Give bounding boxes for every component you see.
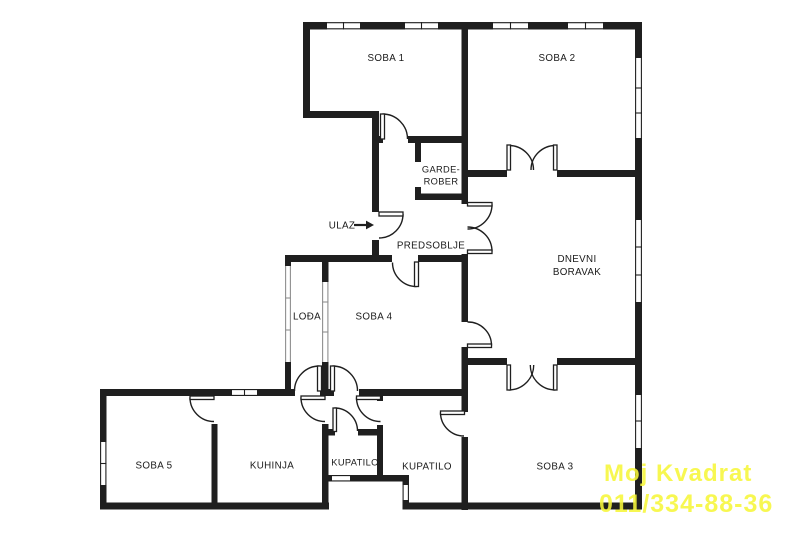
glazing-loggia-divider [322, 282, 329, 362]
wall-vestibule-bottom-right [358, 429, 383, 436]
wall-lower-top-4 [359, 389, 468, 396]
wall-right-1 [635, 22, 642, 58]
wall-right-3 [635, 302, 642, 395]
window-soba1-b [405, 22, 438, 30]
wall-dnevni-soba3-left [468, 358, 507, 365]
window-kuhinja-top [232, 389, 257, 396]
wall-loggia-left-top [285, 255, 291, 266]
window-soba1-a [327, 22, 360, 30]
wall-soba1-left [303, 22, 310, 118]
label-soba3: SOBA 3 [537, 462, 574, 473]
label-soba2: SOBA 2 [539, 53, 576, 64]
wall-soba1-bottom [303, 111, 379, 118]
label-garderober-line2: ROBER [424, 177, 459, 187]
wall-kuhinja-right [322, 424, 329, 510]
wall-central-divider-3 [462, 347, 469, 412]
wall-lower-top-2 [257, 389, 295, 396]
wall-soba2-dnevni-left [468, 170, 507, 177]
watermark-line1: Moj Kvadrat [604, 460, 752, 487]
wall-soba2-dnevni-right [557, 170, 642, 177]
wall-soba5-kuhinja-divider [212, 424, 218, 510]
background [0, 0, 800, 533]
label-garderober-line1: GARDE- [422, 165, 460, 175]
wall-bottom-left [100, 503, 329, 510]
window-kupatilo1-bottom [332, 475, 350, 482]
wall-garderober-bottom [415, 194, 468, 201]
window-soba2-b [568, 22, 603, 30]
label-loggia: LOĐA [293, 312, 321, 323]
wall-soba5-left-upper [100, 390, 107, 442]
wall-central-divider-1 [462, 22, 469, 204]
window-soba5-left [100, 442, 107, 485]
wall-central-divider-4 [462, 437, 469, 510]
wall-central-divider-2 [462, 254, 469, 322]
wall-predsoblje-top-right [408, 136, 468, 143]
wall-dnevni-soba3-right [557, 358, 642, 365]
label-soba1: SOBA 1 [368, 53, 405, 64]
wall-loggia-divider-top [322, 255, 329, 282]
wall-right-2 [635, 138, 642, 220]
label-predsoblje: PREDSOBLJE [397, 241, 465, 252]
label-dnevni-line1: DNEVNI [557, 254, 596, 265]
window-soba2-a [493, 22, 528, 30]
watermark-line2: 011/334-88-36 [599, 490, 773, 518]
label-dnevni-line2: BORAVAK [553, 267, 601, 278]
window-soba2-right [635, 58, 642, 138]
wall-soba4-top-right [418, 255, 462, 262]
window-step [403, 485, 410, 500]
wall-lower-top-1 [100, 389, 232, 396]
wall-entrance-upper [372, 111, 379, 212]
label-kupatilo-large: KUPATILO [402, 462, 452, 473]
label-kupatilo-small: KUPATILO [331, 458, 378, 468]
wall-garderober-left-upper [415, 143, 421, 162]
floorplan-canvas: SOBA 1 SOBA 2 GARDE- ROBER ULAZ PREDSOBL… [0, 0, 800, 533]
window-dnevni-right [635, 220, 642, 302]
wall-soba4-top-left [285, 255, 392, 262]
glazing-loggia-left [285, 266, 291, 362]
label-kuhinja: KUHINJA [250, 461, 294, 472]
floorplan-drawing: SOBA 1 SOBA 2 GARDE- ROBER ULAZ PREDSOBL… [0, 0, 800, 533]
wall-step-upper [403, 475, 410, 485]
label-ulaz: ULAZ [329, 221, 355, 232]
window-soba3-right [635, 395, 642, 448]
label-soba5: SOBA 5 [136, 461, 173, 472]
label-soba4: SOBA 4 [356, 312, 393, 323]
